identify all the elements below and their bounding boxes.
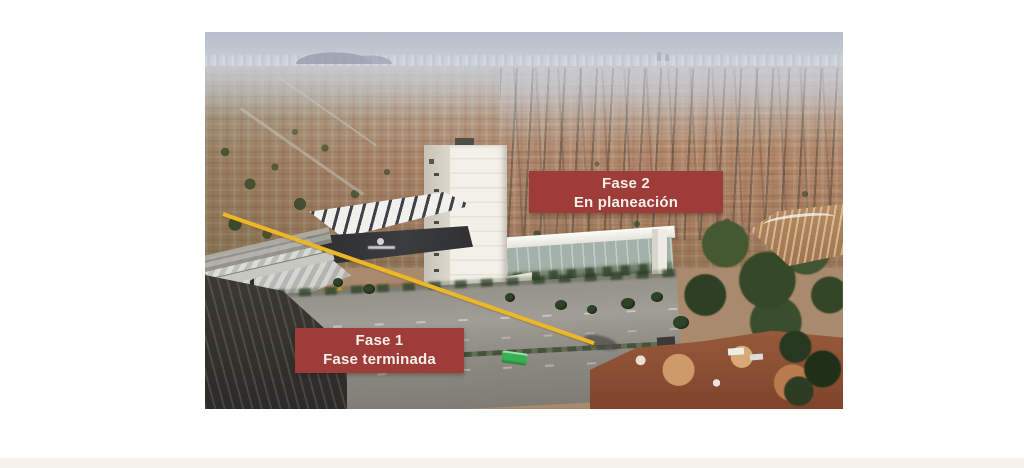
store-logo-emblem	[377, 238, 384, 245]
footer-strip	[0, 458, 1024, 468]
aerial-photo: PLAZA	[205, 32, 843, 409]
tree	[587, 305, 597, 314]
tree	[651, 292, 663, 302]
tree	[505, 293, 515, 302]
phase1-title: Fase 1	[295, 331, 464, 350]
window	[429, 159, 434, 164]
distant-highrise	[665, 54, 669, 61]
phase2-title: Fase 2	[529, 174, 723, 193]
phase1-status: Fase terminada	[295, 350, 464, 369]
distant-highrise	[657, 52, 661, 61]
tree	[555, 300, 567, 310]
slide-page: PLAZA	[0, 0, 1024, 468]
truck	[728, 347, 744, 355]
tree	[621, 298, 635, 309]
tree	[673, 316, 689, 329]
corner-trees	[775, 320, 843, 409]
tree	[363, 284, 375, 294]
store-logo	[367, 238, 397, 252]
phase1-label: Fase 1 Fase terminada	[295, 328, 464, 373]
phase2-status: En planeación	[529, 193, 723, 212]
truck	[750, 354, 763, 361]
tree	[333, 278, 343, 287]
store-logo-wordmark	[368, 246, 395, 249]
traffic-cars	[205, 32, 212, 36]
mountain-silhouette	[280, 44, 400, 64]
truck	[657, 336, 676, 345]
phase2-label: Fase 2 En planeación	[529, 171, 723, 213]
